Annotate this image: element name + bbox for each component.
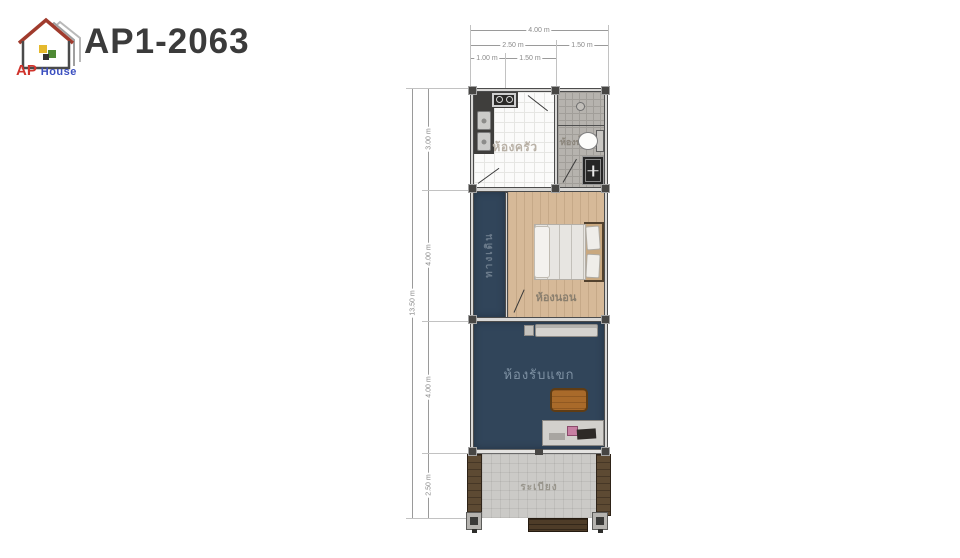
shower-tray-icon (582, 156, 604, 185)
bedroom-label: ห้องนอน (508, 288, 604, 306)
column (551, 86, 560, 95)
extension-line (406, 518, 470, 519)
column (468, 447, 477, 456)
window-wall-nub (535, 449, 543, 455)
extension-line (608, 25, 609, 88)
dim-left-total: 13.50 m (409, 288, 416, 317)
dim-top-left-line: 2.50 m (470, 45, 556, 46)
dim-left-s3: 4.00 m (425, 374, 432, 399)
wall-bedroom-living (470, 317, 608, 322)
balcony-wood-wall-left (467, 454, 482, 516)
column (551, 184, 560, 193)
dim-top-total-line: 4.00 m (470, 30, 608, 31)
extension-line (505, 53, 506, 88)
dim-left-s4: 2.50 m (425, 472, 432, 497)
balcony-post (592, 512, 608, 530)
dim-top-inner-right-line: 1.50 m (505, 58, 556, 59)
walkway-label: ทางเดิน (482, 232, 497, 278)
column (468, 184, 477, 193)
column (468, 315, 477, 324)
kitchen-label: ห้องครัว (476, 138, 554, 157)
column (468, 86, 477, 95)
stove-icon (492, 93, 516, 107)
column (601, 315, 610, 324)
sofa-icon (535, 324, 598, 337)
extension-line (470, 25, 471, 88)
coffee-table-icon (550, 388, 588, 412)
extension-line (556, 40, 557, 88)
dim-left-s2-line: 4.00 m (428, 190, 429, 321)
extension-line (422, 453, 470, 454)
wall-right (604, 88, 608, 454)
column (601, 184, 610, 193)
side-table-icon (524, 325, 534, 336)
dim-left-s3-line: 4.00 m (428, 321, 429, 453)
dim-left-s4-line: 2.50 m (428, 453, 429, 518)
plan-title: AP1-2063 (84, 22, 250, 62)
dim-top-left: 2.50 m (500, 42, 525, 49)
column (601, 447, 610, 456)
shower-partition (558, 125, 604, 126)
tv-cabinet-icon (542, 420, 604, 446)
living-room-label: ห้องรับแขก (474, 364, 604, 385)
dim-top-inner-left-line: 1.00 m (470, 58, 505, 59)
dim-top-total: 4.00 m (526, 27, 551, 34)
extension-line (422, 321, 470, 322)
bed-folded-blanket-icon (534, 226, 550, 278)
dim-top-inner-left: 1.00 m (474, 55, 499, 62)
balcony-step (528, 518, 588, 532)
extension-line (406, 88, 470, 89)
balcony-post (466, 512, 482, 530)
dim-top-right: 1.50 m (569, 42, 594, 49)
walkway-area: ทางเดิน (474, 192, 505, 317)
logo-ap-label: AP (16, 62, 37, 79)
toilet-icon (578, 132, 598, 150)
pillow-icon (585, 254, 600, 279)
dim-left-total-line: 13.50 m (412, 88, 413, 518)
shower-drain-icon (576, 102, 585, 111)
balcony-label: ระเบียง (482, 480, 596, 495)
floor-plan: ห้องครัว ห้องน้ำ ทางเดิน ห้องนอน ห้องรับ… (470, 88, 608, 520)
dim-top-inner-right: 1.50 m (517, 55, 542, 62)
logo-house-label: House (41, 66, 77, 78)
sink-basin-icon (477, 111, 491, 130)
dim-left-s2: 4.00 m (425, 242, 432, 267)
column (601, 86, 610, 95)
balcony-wood-wall-right (596, 454, 611, 516)
pillow-icon (585, 226, 601, 251)
dim-left-s1-line: 3.00 m (428, 88, 429, 190)
logo-text: AP House (16, 62, 77, 79)
dim-left-s1: 3.00 m (425, 126, 432, 151)
dim-top-right-line: 1.50 m (556, 45, 608, 46)
extension-line (422, 190, 470, 191)
